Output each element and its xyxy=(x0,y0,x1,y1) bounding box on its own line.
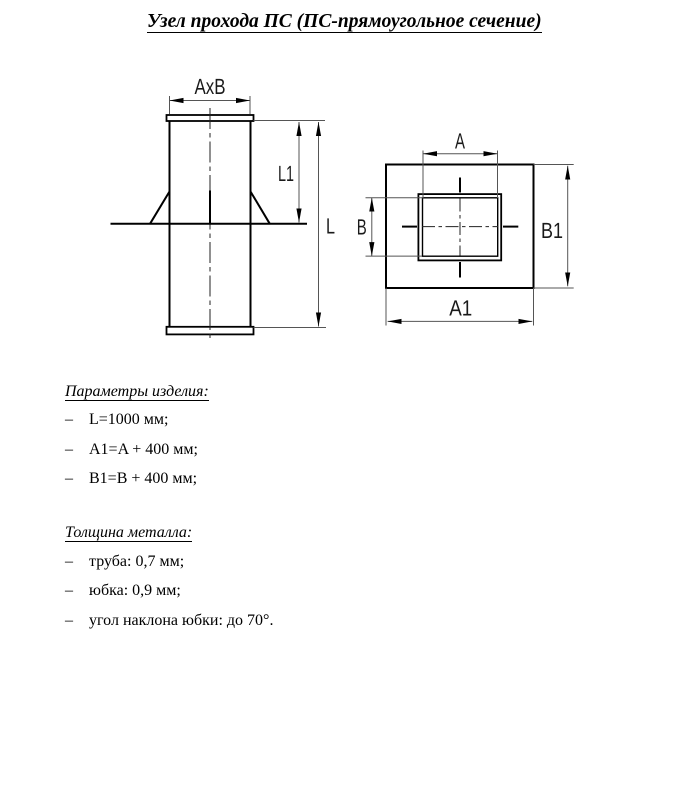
svg-text:A: A xyxy=(455,129,465,154)
svg-text:AxB: AxB xyxy=(195,74,226,99)
svg-text:A1: A1 xyxy=(449,296,472,321)
svg-text:B1: B1 xyxy=(541,218,563,243)
svg-text:L: L xyxy=(326,214,335,239)
svg-text:L1: L1 xyxy=(278,161,294,186)
svg-text:B: B xyxy=(357,215,367,240)
